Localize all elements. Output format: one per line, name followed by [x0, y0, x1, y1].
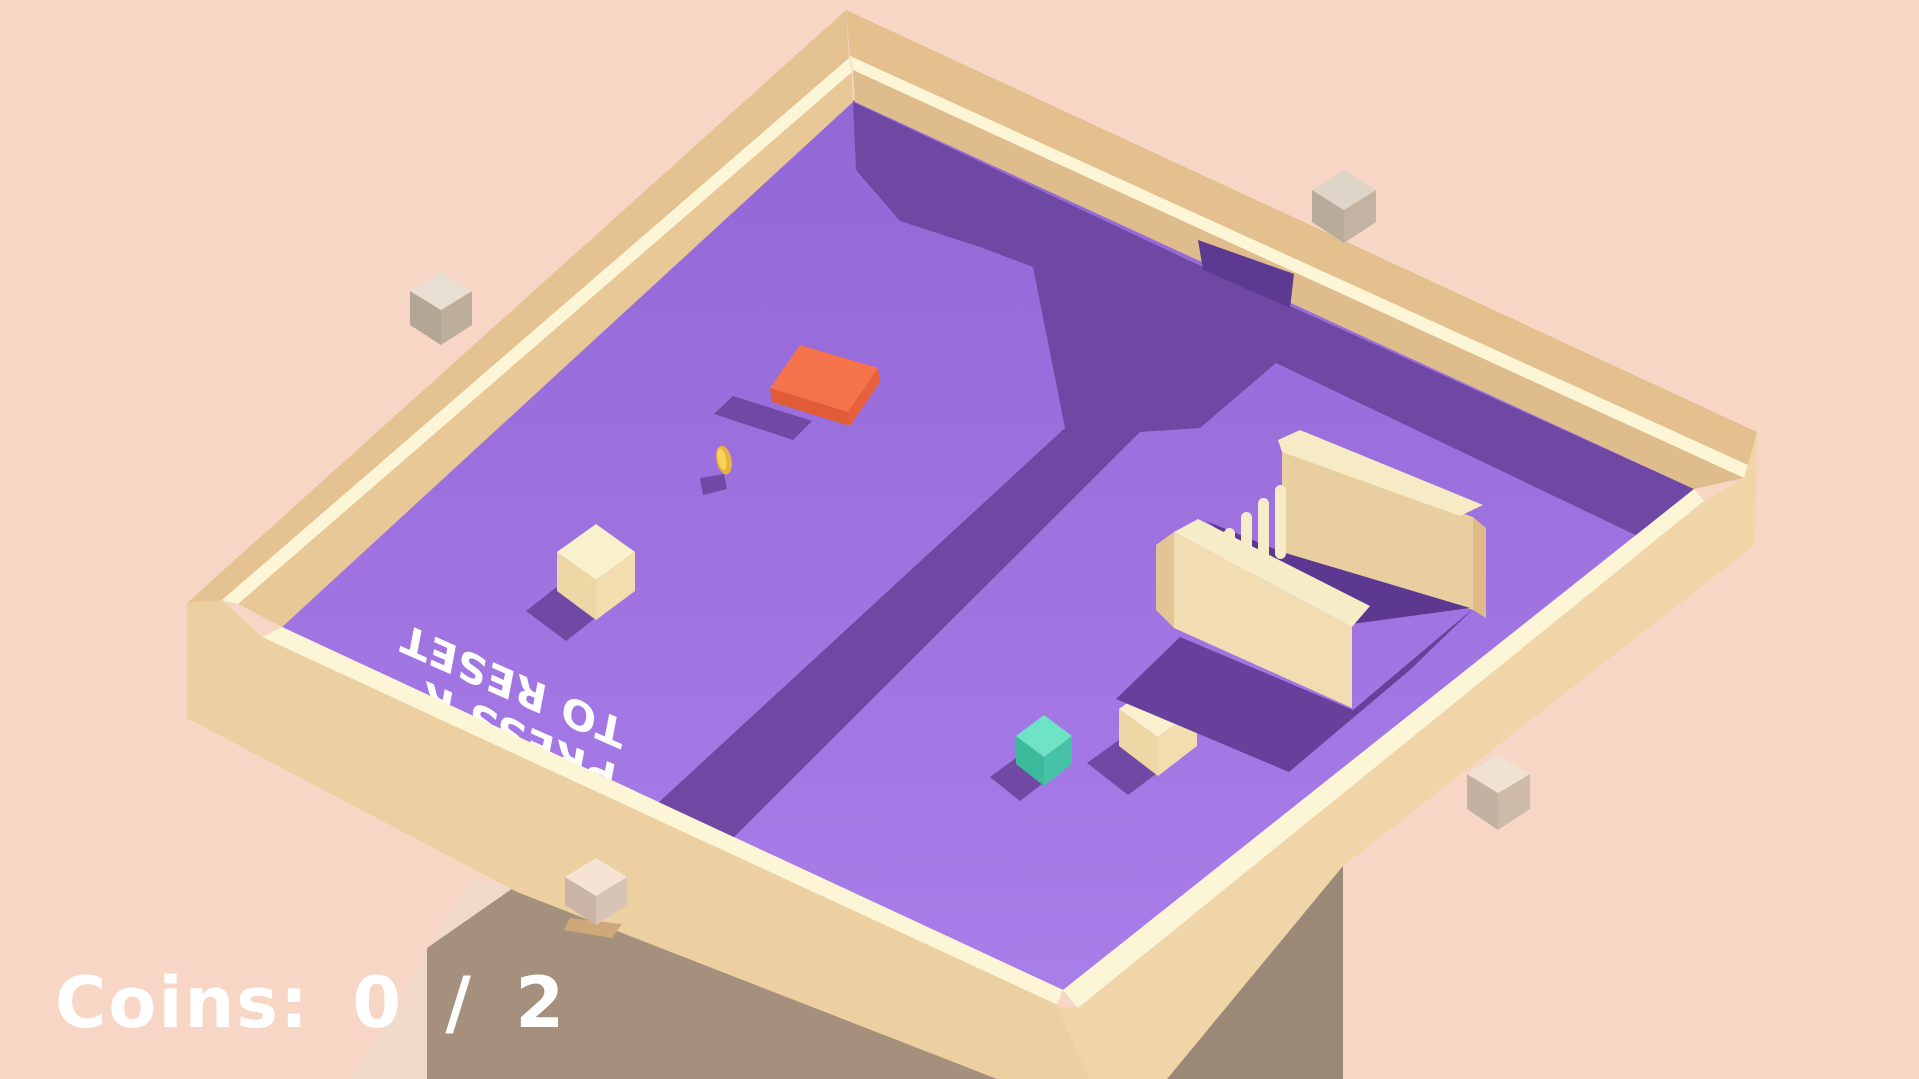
game-scene-canvas: PRESS RTO RESET [0, 0, 1919, 1079]
enclosure-back-wall-cap [1473, 517, 1486, 618]
pillar-4 [1275, 485, 1286, 559]
game-viewport[interactable]: PRESS RTO RESET Coins: 0 / 2 [0, 0, 1919, 1079]
coins-counter: Coins: 0 / 2 [55, 962, 566, 1044]
